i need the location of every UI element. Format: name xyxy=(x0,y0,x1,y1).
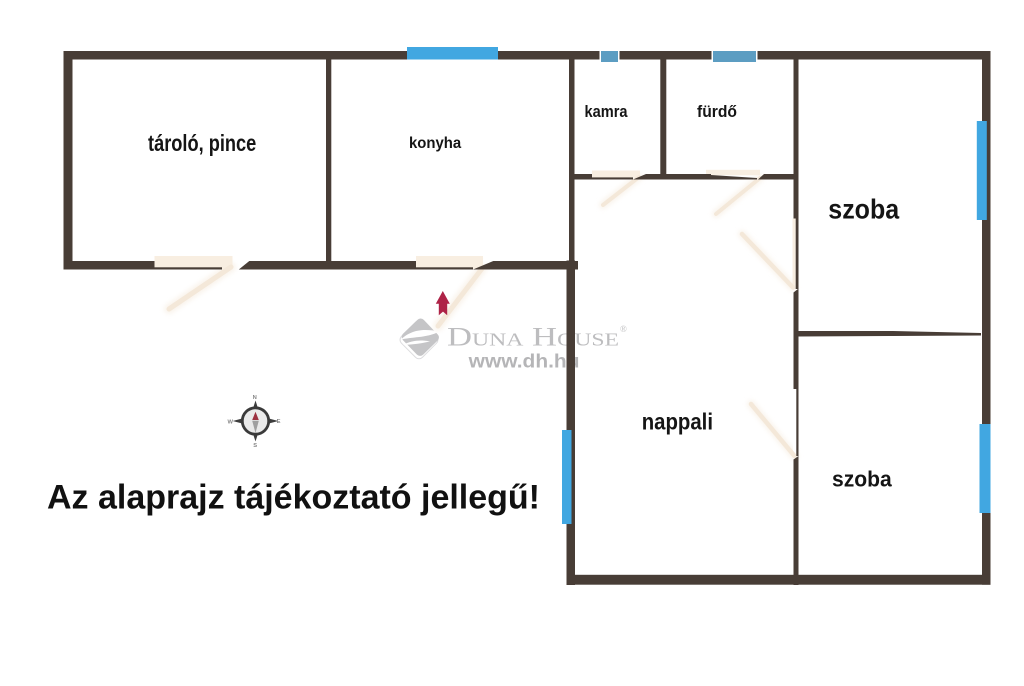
svg-text:nappali: nappali xyxy=(642,408,713,434)
svg-text:tároló, pince: tároló, pince xyxy=(148,130,256,156)
svg-text:S: S xyxy=(253,443,257,449)
svg-text:E: E xyxy=(277,419,281,425)
svg-text:szoba: szoba xyxy=(832,467,893,492)
svg-text:Az alaprajz tájékoztató jelleg: Az alaprajz tájékoztató jellegű! xyxy=(47,478,540,516)
svg-text:kamra: kamra xyxy=(585,103,629,121)
svg-text:fürdő: fürdő xyxy=(697,103,737,121)
svg-text:®: ® xyxy=(620,324,627,334)
svg-text:www.dh.hu: www.dh.hu xyxy=(468,350,580,372)
svg-text:szoba: szoba xyxy=(828,194,899,225)
svg-text:W: W xyxy=(227,420,233,426)
svg-text:N: N xyxy=(253,395,257,401)
svg-text:konyha: konyha xyxy=(409,135,461,152)
svg-text:Duna House: Duna House xyxy=(447,322,619,351)
